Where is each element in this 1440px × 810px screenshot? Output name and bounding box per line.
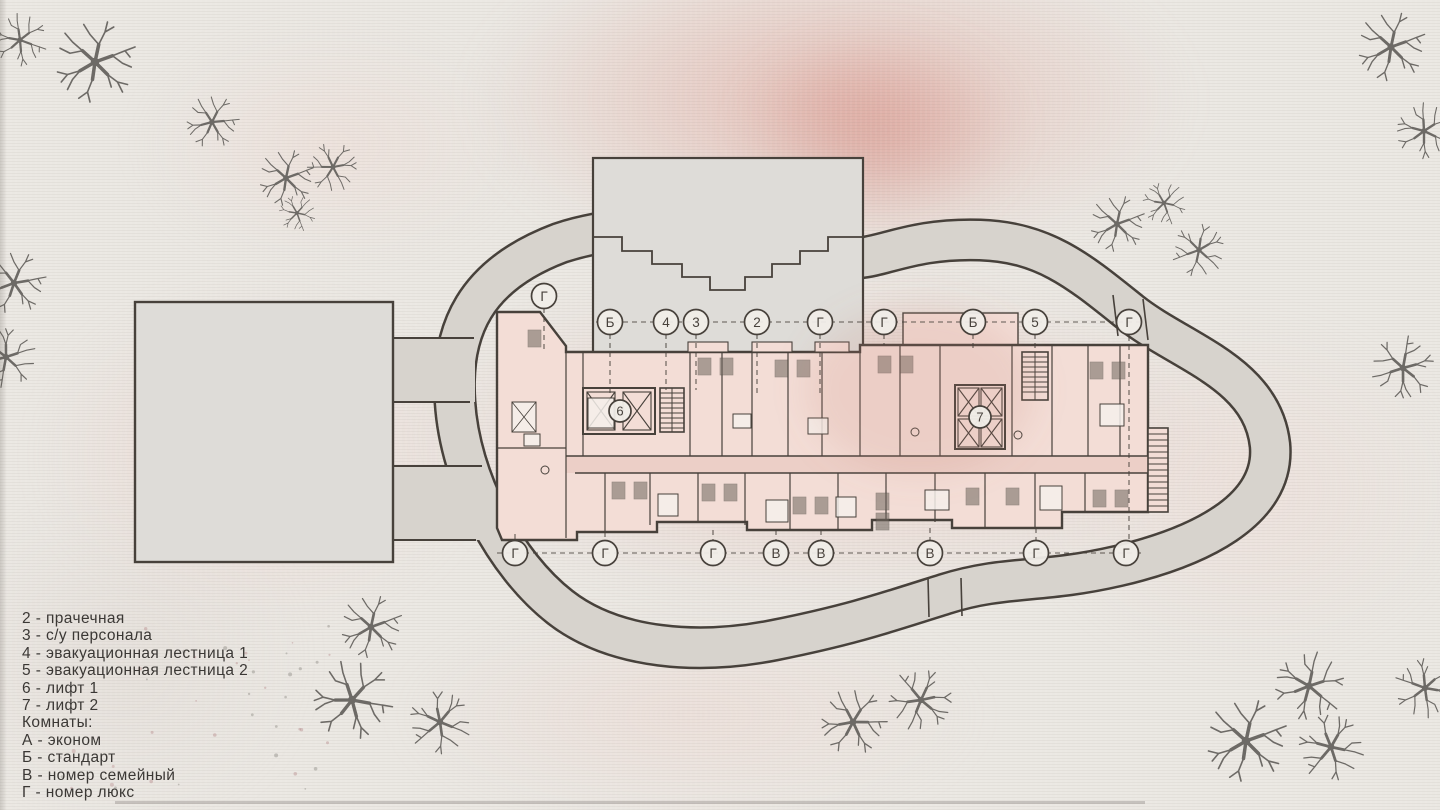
tree-icon bbox=[302, 649, 405, 753]
tree-icon bbox=[1209, 701, 1287, 781]
axis-marker-label: 4 bbox=[662, 315, 670, 330]
bed-icon bbox=[876, 493, 889, 510]
terrace-deck bbox=[1148, 428, 1168, 512]
bed-icon bbox=[1112, 362, 1125, 379]
table-icon bbox=[733, 414, 751, 428]
legend-item: Г - номер люкс bbox=[22, 784, 248, 801]
table-icon bbox=[836, 497, 856, 517]
tree-icon bbox=[1384, 647, 1440, 727]
axis-marker: 3 bbox=[684, 310, 709, 335]
legend-item: Комнаты: bbox=[22, 714, 248, 731]
bed-icon bbox=[612, 482, 625, 499]
bed-icon bbox=[1090, 362, 1103, 379]
axis-marker-label: 3 bbox=[692, 315, 700, 330]
legend-item: В - номер семейный bbox=[22, 767, 248, 784]
axis-marker-label: В bbox=[771, 546, 780, 561]
tree-icon bbox=[58, 22, 136, 102]
tree-icon bbox=[882, 661, 959, 737]
legend-item: 3 - с/у персонала bbox=[22, 627, 248, 644]
legend-item: 2 - прачечная bbox=[22, 610, 248, 627]
legend-item: 4 - эвакуационная лестница 1 bbox=[22, 645, 248, 662]
tree-icon bbox=[1092, 197, 1145, 251]
tree-icon bbox=[182, 91, 243, 153]
legend: 2 - прачечная3 - с/у персонала4 - эвакуа… bbox=[22, 610, 248, 801]
bed-icon bbox=[1115, 490, 1128, 507]
bed-icon bbox=[876, 513, 889, 530]
axis-marker-label: Г bbox=[816, 315, 824, 330]
legend-item: А - эконом bbox=[22, 732, 248, 749]
axis-marker-label: Б bbox=[969, 315, 978, 330]
bed-icon bbox=[698, 358, 711, 375]
axis-marker-label: В bbox=[925, 546, 934, 561]
legend-item: 6 - лифт 1 bbox=[22, 680, 248, 697]
bed-icon bbox=[793, 497, 806, 514]
bed-icon bbox=[966, 488, 979, 505]
tree-icon bbox=[1143, 184, 1185, 224]
table-icon bbox=[1040, 486, 1062, 510]
axis-marker-label: 7 bbox=[976, 410, 983, 425]
axis-marker: Г bbox=[1117, 310, 1142, 335]
axis-marker: 4 bbox=[654, 310, 679, 335]
bed-icon bbox=[1093, 490, 1106, 507]
tree-icon bbox=[0, 5, 56, 76]
tree-icon bbox=[1360, 13, 1425, 80]
legend-item: 7 - лифт 2 bbox=[22, 697, 248, 714]
tree-icon bbox=[1173, 224, 1223, 275]
bed-icon bbox=[702, 484, 715, 501]
axis-marker-label: Г bbox=[1122, 546, 1130, 561]
bed-icon bbox=[775, 360, 788, 377]
table-icon bbox=[925, 490, 949, 510]
bed-icon bbox=[634, 482, 647, 499]
table-icon bbox=[1100, 404, 1124, 426]
axis-marker: В bbox=[764, 541, 789, 566]
annex-building-footprint bbox=[135, 302, 393, 562]
legend-item: 5 - эвакуационная лестница 2 bbox=[22, 662, 248, 679]
legend-item: Б - стандарт bbox=[22, 749, 248, 766]
axis-marker: Г bbox=[808, 310, 833, 335]
axis-marker-label: Г bbox=[540, 289, 548, 304]
axis-marker-label: Г bbox=[880, 315, 888, 330]
axis-marker: 5 bbox=[1023, 310, 1048, 335]
axis-marker: Б bbox=[961, 310, 986, 335]
bed-icon bbox=[815, 497, 828, 514]
axis-marker: Г bbox=[872, 310, 897, 335]
axis-marker-label: 5 bbox=[1031, 315, 1039, 330]
table-icon bbox=[658, 494, 678, 516]
axis-marker: 2 bbox=[745, 310, 770, 335]
axis-marker: Г bbox=[532, 284, 557, 309]
axis-marker-label: В bbox=[816, 546, 825, 561]
tree-icon bbox=[814, 682, 894, 763]
axis-marker: В bbox=[918, 541, 943, 566]
bed-icon bbox=[720, 358, 733, 375]
axis-marker: 6 bbox=[609, 400, 631, 422]
axis-marker: Г bbox=[701, 541, 726, 566]
tree-icon bbox=[343, 597, 402, 658]
axis-marker-label: Г bbox=[601, 546, 609, 561]
axis-marker: Г bbox=[1114, 541, 1139, 566]
axis-marker-label: 2 bbox=[753, 315, 761, 330]
watercolor-tint bbox=[805, 305, 1035, 475]
axis-marker: В bbox=[809, 541, 834, 566]
axis-marker-label: Г bbox=[709, 546, 717, 561]
tree-icon bbox=[0, 319, 44, 396]
table-icon bbox=[766, 500, 788, 522]
axis-marker-label: 6 bbox=[616, 404, 623, 419]
axis-marker: 7 bbox=[969, 406, 991, 428]
axis-marker: Б bbox=[598, 310, 623, 335]
bed-icon bbox=[1006, 488, 1019, 505]
tree-icon bbox=[1387, 94, 1440, 170]
axis-marker-label: Г bbox=[1125, 315, 1133, 330]
axis-marker-label: Г bbox=[511, 546, 519, 561]
tree-icon bbox=[279, 197, 314, 231]
bed-icon bbox=[724, 484, 737, 501]
axis-marker-label: Г bbox=[1032, 546, 1040, 561]
tree-icon bbox=[1362, 326, 1440, 407]
axis-marker: Г bbox=[593, 541, 618, 566]
axis-marker: Г bbox=[1024, 541, 1049, 566]
tree-icon bbox=[401, 684, 477, 761]
tree-icon bbox=[261, 151, 314, 205]
axis-marker-label: Б bbox=[606, 315, 615, 330]
table-icon bbox=[524, 434, 540, 446]
tree-icon bbox=[0, 248, 49, 318]
bed-icon bbox=[528, 330, 541, 347]
axis-marker: Г bbox=[503, 541, 528, 566]
site-plan-canvas: ГБ432ГГБ5ГГГГВВВГГ67 2 - прачечная3 - с/… bbox=[0, 0, 1440, 810]
tree-icon bbox=[302, 136, 362, 197]
tree-icon bbox=[1264, 642, 1355, 732]
